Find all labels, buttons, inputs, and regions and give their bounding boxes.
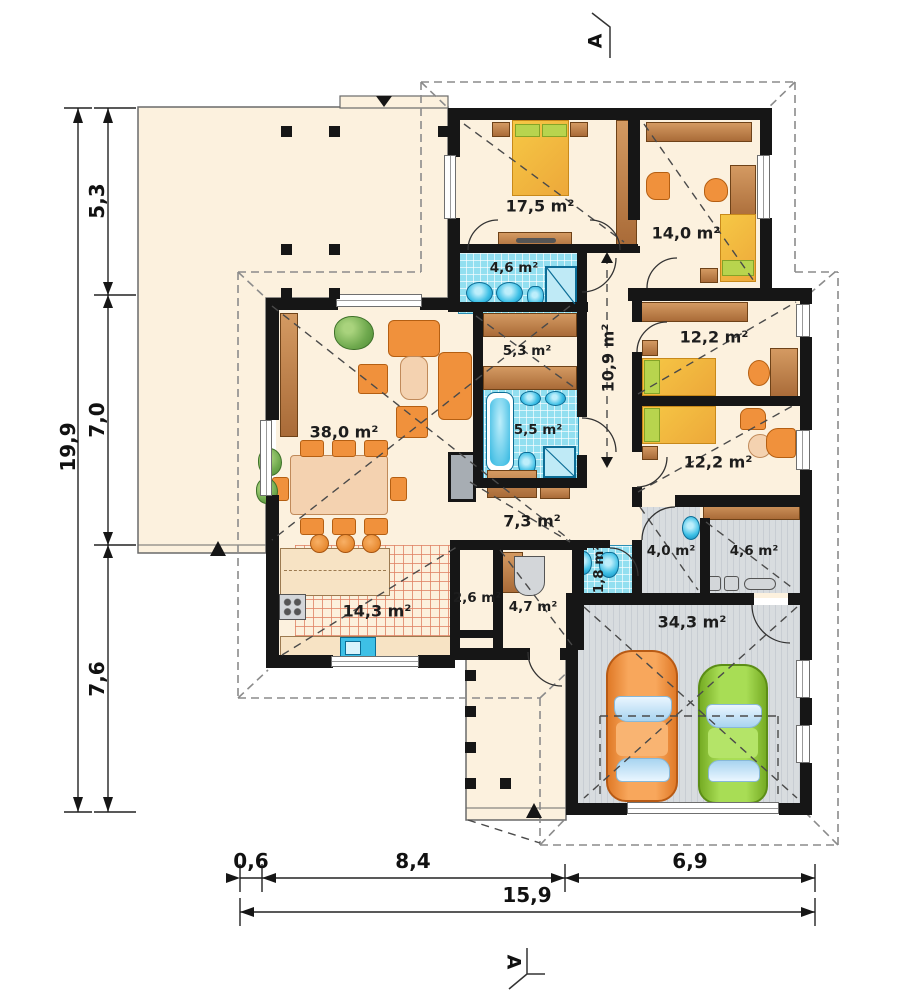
room-label-kitchen: 14,3 m² xyxy=(343,602,412,621)
dim-bottom-seg-1: 8,4 xyxy=(395,849,430,873)
room-label-corridor: 10,9 m² xyxy=(599,324,618,393)
floor-plan: 17,5 m² 14,0 m² 4,6 m² 5,3 m² 10,9 m² 12… xyxy=(0,0,900,1000)
section-marker-lines xyxy=(509,13,610,989)
room-label-garage: 34,3 m² xyxy=(658,613,727,632)
room-label-study: 14,0 m² xyxy=(652,224,721,243)
room-label-wardrobe-hall: 5,3 m² xyxy=(503,343,552,359)
dim-left-seg-1: 7,0 xyxy=(85,402,109,437)
room-label-wc: 1,8 m² xyxy=(591,545,607,594)
room-label-bedroom-3: 12,2 m² xyxy=(684,453,753,472)
dim-bottom-seg-2: 6,9 xyxy=(672,849,707,873)
section-marker-bottom: A xyxy=(502,955,524,970)
section-marker-top: A xyxy=(584,34,606,49)
dim-total-left: 19,9 xyxy=(56,422,80,471)
shower-glass-lines xyxy=(545,268,575,476)
dim-left-seg-2: 7,6 xyxy=(85,661,109,696)
dim-bottom-seg-0: 0,6 xyxy=(233,849,268,873)
room-label-living-room: 38,0 m² xyxy=(310,423,379,442)
room-label-bedroom-1: 17,5 m² xyxy=(506,197,575,216)
step-arrows xyxy=(210,96,542,818)
dim-total-bottom: 15,9 xyxy=(502,883,551,907)
room-label-hall: 7,3 m² xyxy=(503,512,561,531)
room-label-bathroom-1: 4,6 m² xyxy=(490,260,539,276)
annotation-layer xyxy=(0,0,900,1000)
room-label-bedroom-2: 12,2 m² xyxy=(680,328,749,347)
room-label-bathroom-2: 5,5 m² xyxy=(514,422,563,438)
room-label-boiler: 4,6 m² xyxy=(730,543,779,559)
room-label-pantry: 2,6 m² xyxy=(453,590,502,606)
room-label-entry-hall: 4,7 m² xyxy=(509,599,558,615)
room-label-utility: 4,0 m² xyxy=(647,543,696,559)
dim-left-seg-0: 5,3 xyxy=(85,183,109,218)
